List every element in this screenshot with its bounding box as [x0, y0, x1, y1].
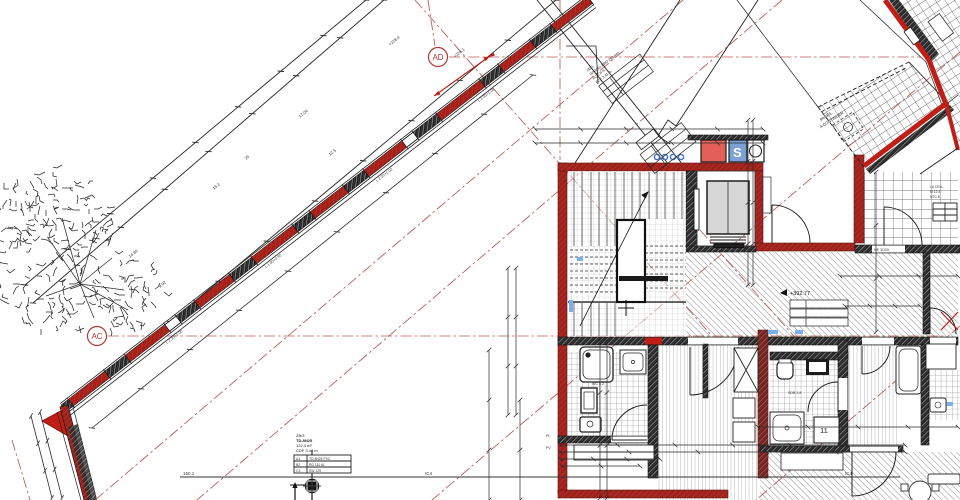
svg-text:A1: A1 — [296, 457, 300, 461]
svg-text:SW 125: SW 125 — [309, 469, 321, 473]
svg-text:IC4: IC4 — [425, 471, 433, 476]
svg-text:CDF 3.44 m: CDF 3.44 m — [296, 448, 318, 453]
svg-text:B2: B2 — [296, 463, 300, 467]
svg-text:AD: AD — [432, 53, 443, 62]
svg-text:150.1: 150.1 — [183, 471, 195, 476]
svg-text:PL: PL — [546, 434, 550, 438]
svg-text:AC: AC — [91, 332, 102, 341]
svg-text:PV: PV — [546, 446, 551, 450]
svg-text:M 12.4: M 12.4 — [930, 190, 940, 194]
svg-text:TD 8N25 PVC: TD 8N25 PVC — [309, 457, 331, 461]
svg-text:LA CELL: LA CELL — [930, 185, 943, 189]
svg-text:S: S — [733, 145, 742, 160]
svg-text:WC 4.2: WC 4.2 — [592, 382, 604, 386]
svg-text:C3: C3 — [296, 469, 300, 473]
svg-text:+392.77: +392.77 — [790, 291, 810, 297]
svg-text:SDB 3.8: SDB 3.8 — [788, 391, 801, 395]
svg-text:IC4: IC4 — [845, 471, 853, 476]
svg-text:RD 110 AL: RD 110 AL — [309, 463, 325, 467]
svg-text:NTC 8: NTC 8 — [930, 195, 940, 199]
